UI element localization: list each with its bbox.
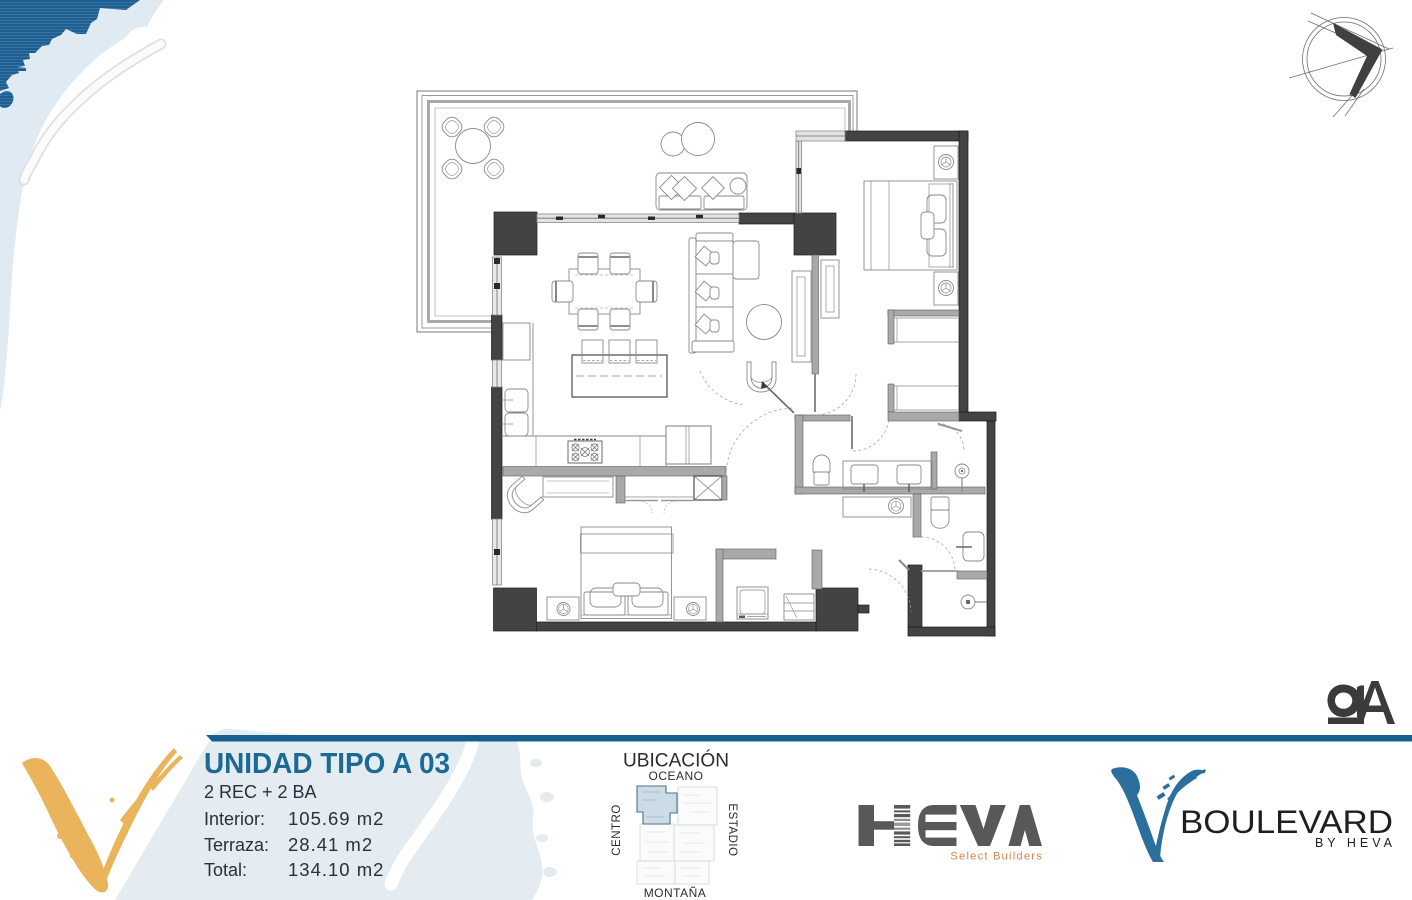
svg-text:28.41 m2: 28.41 m2: [288, 834, 373, 855]
svg-text:BOULEVARD: BOULEVARD: [1180, 804, 1393, 840]
svg-text:2 REC + 2 BA: 2 REC + 2 BA: [204, 782, 317, 802]
svg-text:Interior:: Interior:: [204, 809, 265, 829]
svg-text:Select Builders: Select Builders: [950, 851, 1043, 863]
svg-text:UNIDAD TIPO A 03: UNIDAD TIPO A 03: [204, 748, 450, 780]
svg-text:BY HEVA: BY HEVA: [1315, 836, 1396, 850]
svg-text:105.69 m2: 105.69 m2: [288, 808, 384, 829]
svg-text:MONTAÑA: MONTAÑA: [644, 886, 707, 900]
svg-text:134.10 m2: 134.10 m2: [288, 859, 384, 880]
svg-text:Terraza:: Terraza:: [204, 835, 269, 855]
svg-text:CENTRO: CENTRO: [611, 804, 623, 856]
svg-text:ESTADIO: ESTADIO: [726, 803, 738, 856]
svg-text:Total:: Total:: [204, 860, 247, 880]
svg-text:OCEANO: OCEANO: [648, 769, 703, 783]
